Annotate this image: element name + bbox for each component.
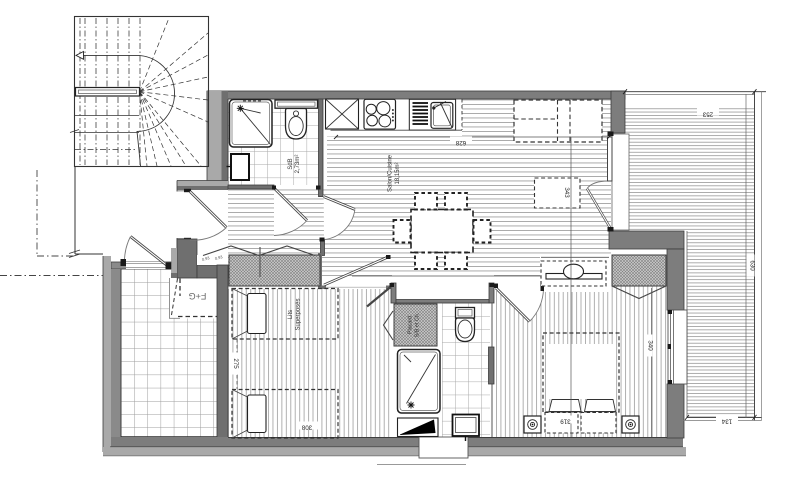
svg-text:2,73m²: 2,73m² (295, 155, 301, 174)
svg-text:F+G: F+G (189, 291, 207, 301)
svg-text:275: 275 (232, 358, 239, 369)
svg-text:SdB: SdB (288, 158, 294, 169)
svg-text:308: 308 (301, 424, 312, 431)
svg-text:319: 319 (560, 418, 571, 425)
svg-text:Lits: Lits (288, 310, 294, 319)
svg-text:340: 340 (647, 340, 654, 351)
svg-text:18,15m²: 18,15m² (395, 162, 401, 184)
svg-text:Salon/Cuisine: Salon/Cuisine (388, 154, 394, 192)
svg-text:630: 630 (749, 260, 756, 271)
svg-text:Superposés: Superposés (296, 298, 302, 330)
svg-text:134: 134 (721, 418, 732, 425)
svg-text:628: 628 (455, 139, 466, 146)
svg-text:253: 253 (702, 111, 713, 118)
svg-text:343: 343 (563, 187, 570, 198)
svg-text:Placard: Placard (408, 316, 414, 334)
svg-text:S/B et Ch.: S/B et Ch. (415, 313, 421, 338)
